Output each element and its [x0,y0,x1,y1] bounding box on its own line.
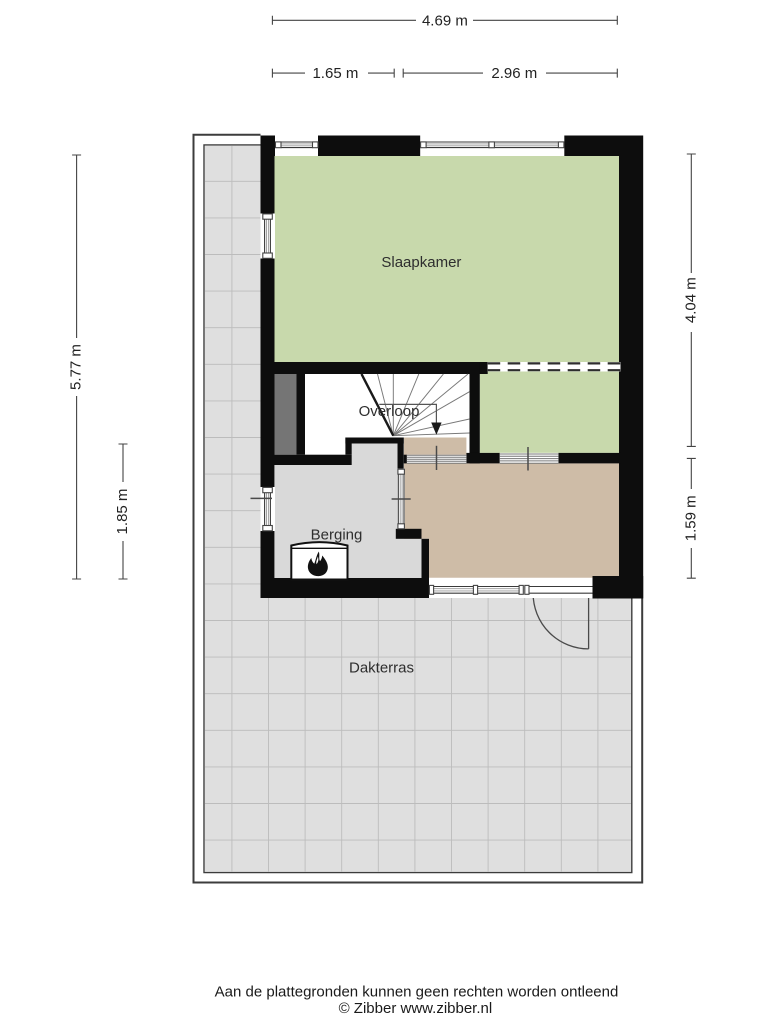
svg-text:1.65 m: 1.65 m [312,65,358,82]
svg-text:1.59 m: 1.59 m [682,495,699,541]
svg-text:2.96 m: 2.96 m [491,65,537,82]
svg-text:Aan de plattegronden kunnen ge: Aan de plattegronden kunnen geen rechten… [215,984,619,1001]
svg-text:© Zibber www.zibber.nl: © Zibber www.zibber.nl [339,1000,493,1017]
svg-text:Slaapkamer: Slaapkamer [381,254,461,271]
svg-text:Berging: Berging [311,526,363,543]
svg-text:Overloop: Overloop [359,403,420,420]
svg-text:4.04 m: 4.04 m [682,277,699,323]
svg-text:1.85 m: 1.85 m [114,489,131,535]
svg-text:Dakterras: Dakterras [349,659,414,676]
svg-text:4.69 m: 4.69 m [422,12,468,29]
svg-text:5.77 m: 5.77 m [68,344,85,390]
